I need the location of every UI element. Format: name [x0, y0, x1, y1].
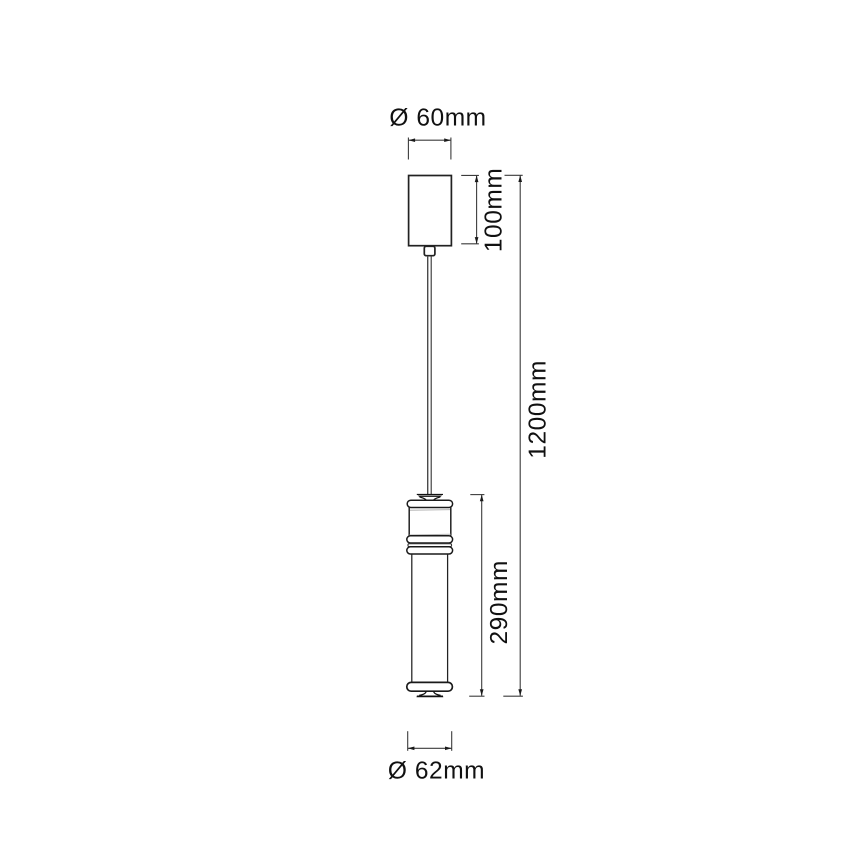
svg-text:Ø 60mm: Ø 60mm	[389, 105, 486, 132]
svg-text:Ø 62mm: Ø 62mm	[388, 757, 485, 784]
svg-text:1200mm: 1200mm	[524, 360, 551, 459]
svg-text:100mm: 100mm	[481, 168, 508, 252]
svg-text:290mm: 290mm	[486, 560, 513, 644]
